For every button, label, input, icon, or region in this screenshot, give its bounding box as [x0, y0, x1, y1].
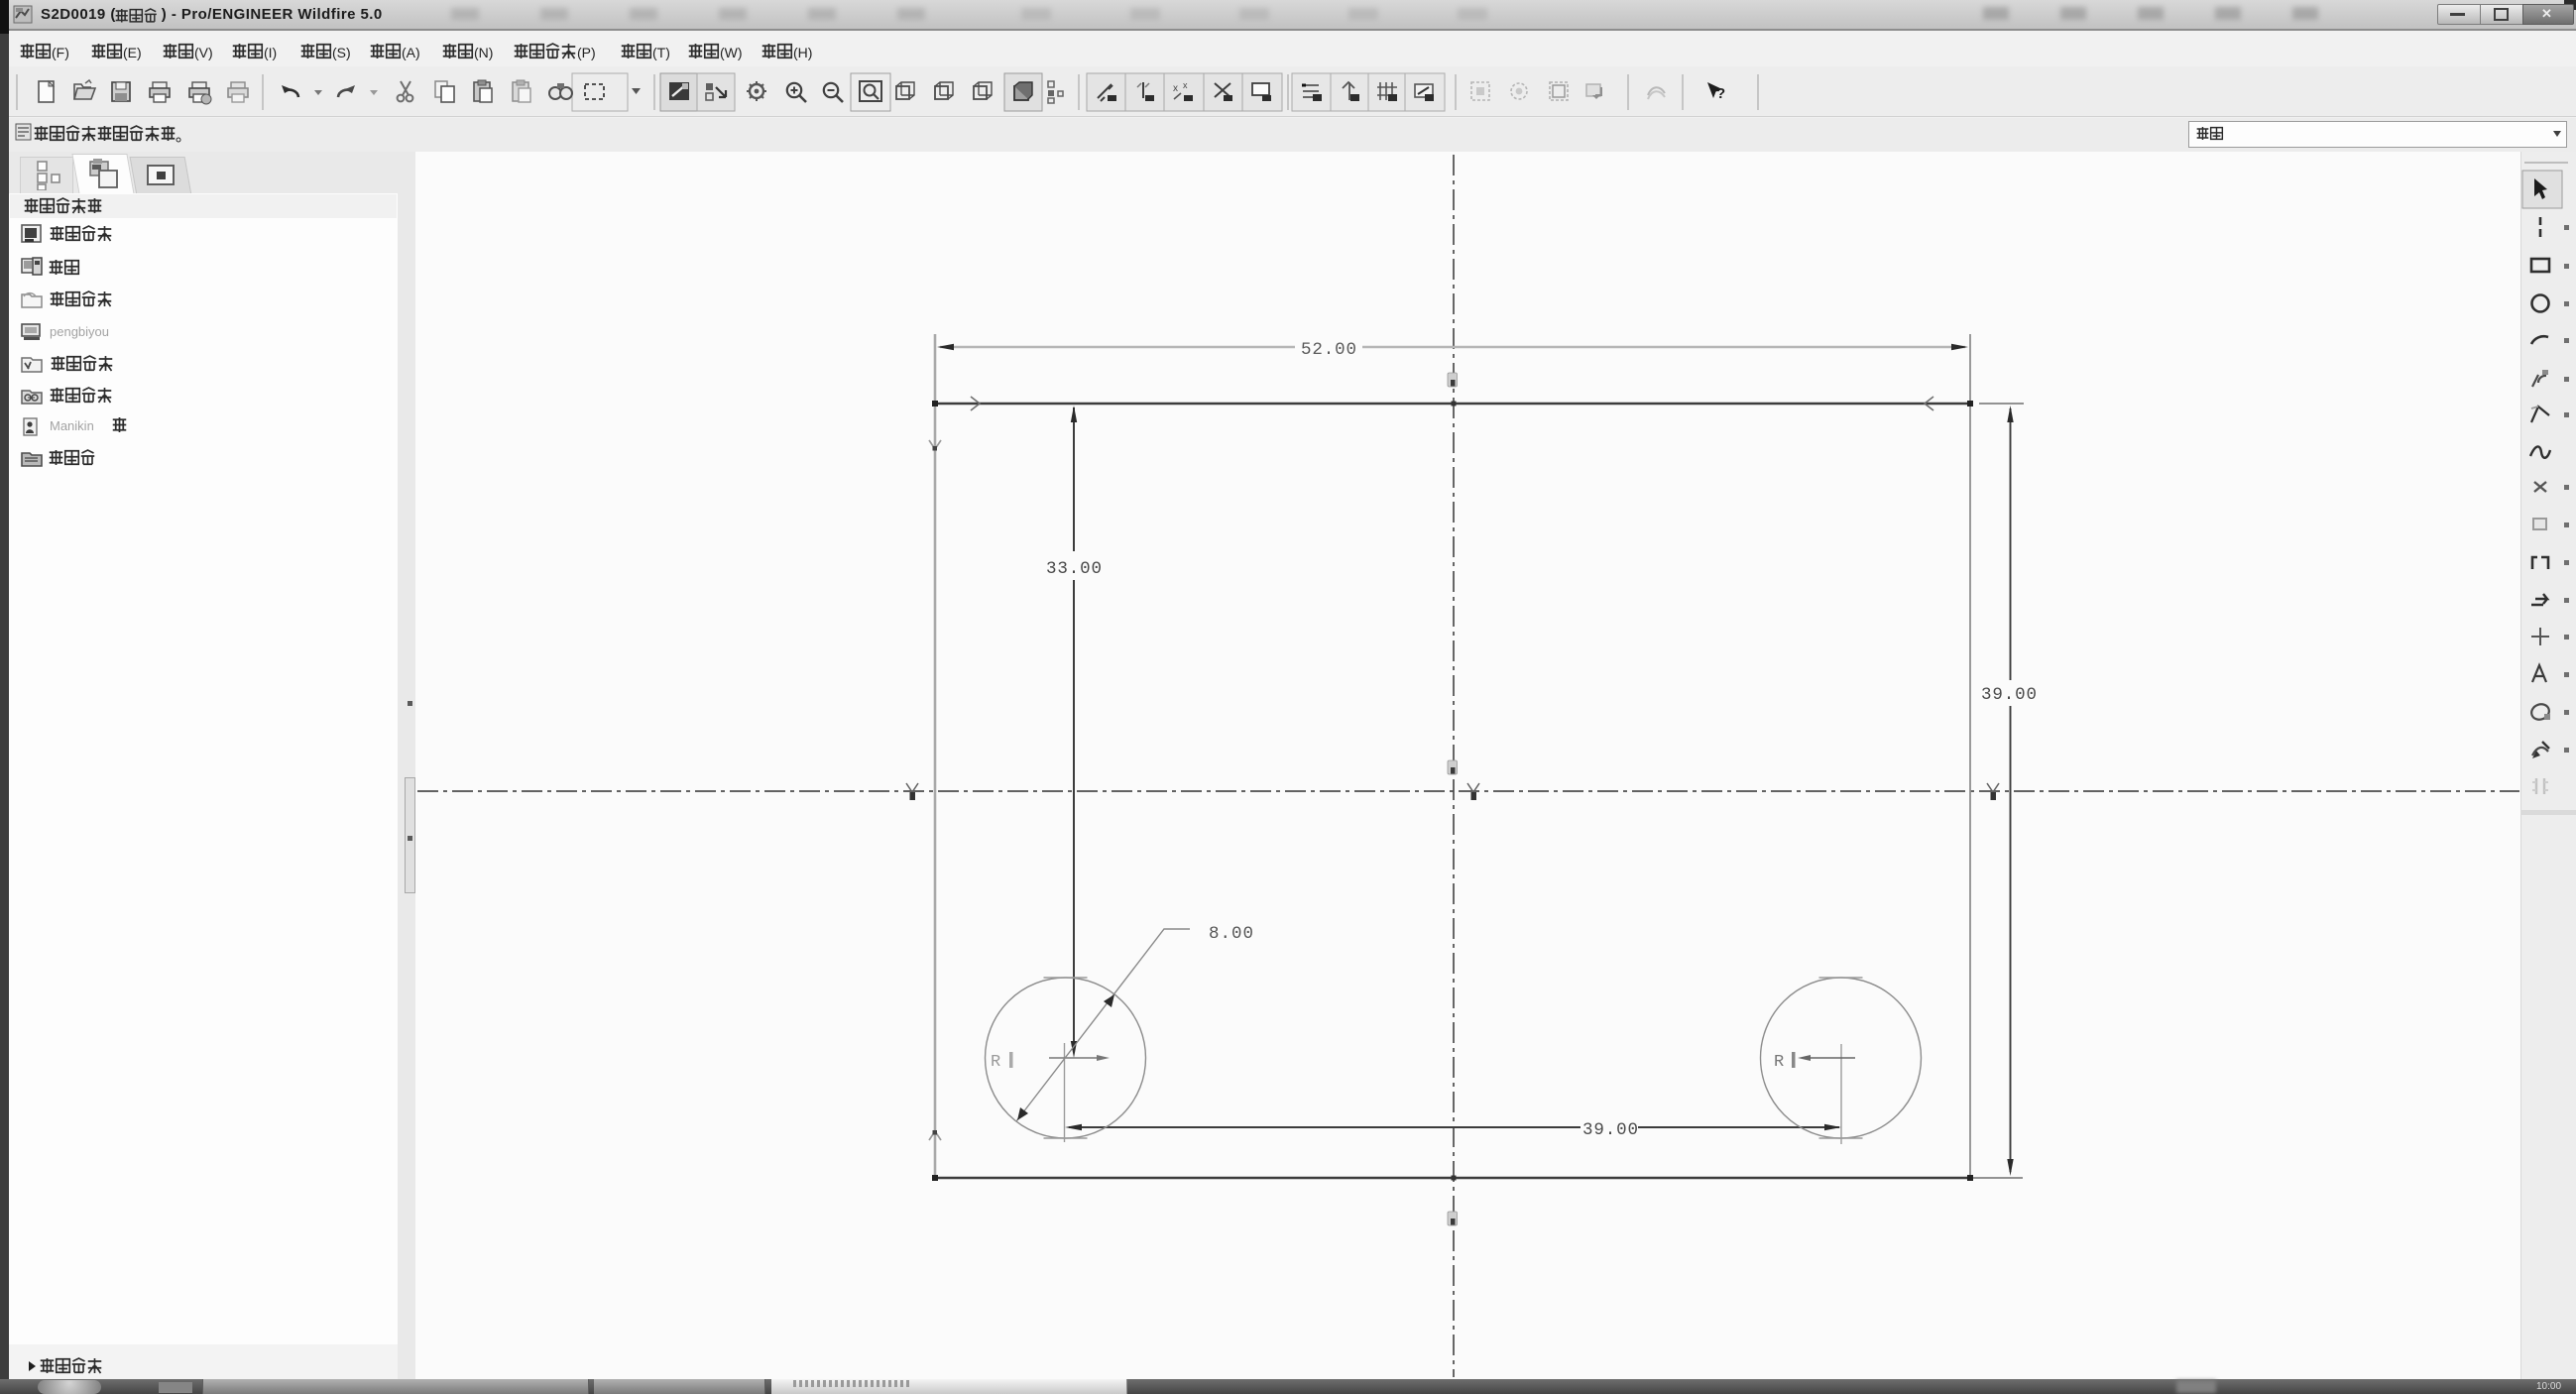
svg-text:(H): (H)	[793, 45, 812, 60]
svg-text:Manikin: Manikin	[50, 418, 94, 433]
svg-text:(W): (W)	[720, 45, 743, 60]
svg-text:(T): (T)	[652, 45, 670, 60]
svg-text:(F): (F)	[52, 45, 69, 60]
svg-text:(N): (N)	[474, 45, 493, 60]
svg-text:(E): (E)	[123, 45, 142, 60]
svg-text:pengbiyou: pengbiyou	[50, 324, 109, 339]
svg-text:(P): (P)	[577, 45, 596, 60]
svg-text:(V): (V)	[194, 45, 213, 60]
svg-text:(I): (I)	[264, 45, 277, 60]
svg-text:(A): (A)	[402, 45, 420, 60]
svg-text:(S): (S)	[332, 45, 351, 60]
